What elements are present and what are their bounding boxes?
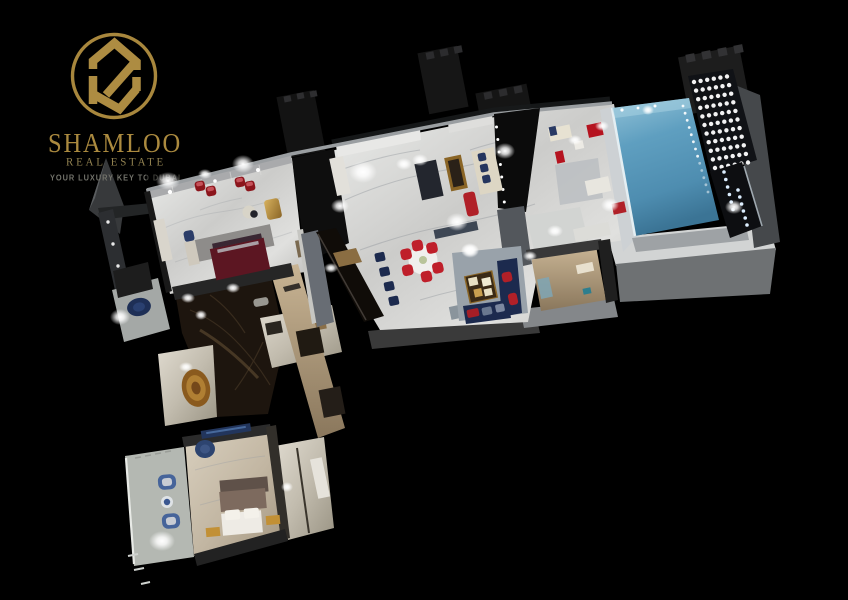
svg-text:SHAMLOO: SHAMLOO xyxy=(48,128,182,158)
svg-text:REAL ESTATE: REAL ESTATE xyxy=(66,155,166,169)
